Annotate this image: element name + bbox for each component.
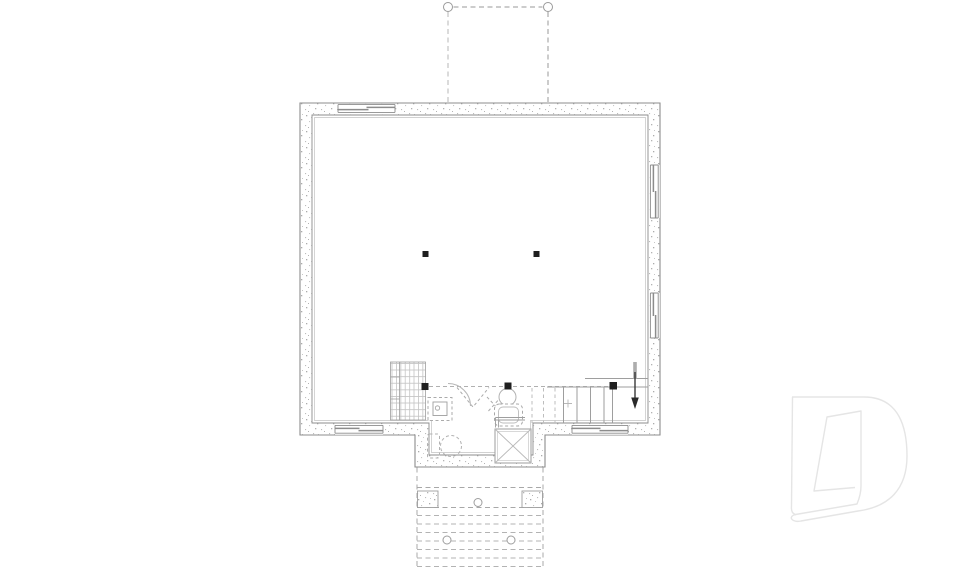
structural-post-center-right — [534, 251, 540, 257]
foundation-wall-furring-line — [315, 118, 646, 453]
floor-drain-cross — [564, 400, 572, 408]
storage-shelving-hatch — [391, 362, 426, 420]
foundation-wall-outer-line — [300, 103, 660, 467]
door-leaf-dashed-v — [457, 388, 489, 408]
rear-step-post-right — [507, 536, 515, 544]
structural-post-center-left — [423, 251, 429, 257]
rear-pier-left — [418, 491, 439, 508]
rear-step-post-left — [443, 536, 451, 544]
toilet-bowl — [499, 389, 516, 406]
rear-post-center — [474, 499, 482, 507]
floor-plan-canvas — [0, 0, 960, 569]
water-heater-circle — [441, 436, 462, 457]
laundry-cabinet-outline — [428, 398, 452, 421]
plan-elements-layer — [300, 3, 907, 569]
stair-treads — [564, 388, 605, 424]
rear-steps-dashed — [417, 516, 543, 567]
stair-treads-dashed — [532, 388, 555, 423]
structural-post-lower-left — [422, 383, 429, 390]
foundation-wall-inner-line — [312, 115, 648, 455]
structural-post-lower-mid — [505, 383, 512, 390]
rear-pier-right — [522, 491, 543, 508]
foundation-wall-band — [300, 103, 660, 467]
stair-arrow-head — [631, 398, 639, 410]
deck-above-post-right — [544, 3, 553, 12]
structural-post-stair — [610, 382, 618, 390]
deck-above-post-left — [444, 3, 453, 12]
brand-watermark-d-logo — [791, 397, 907, 521]
floor-plan-drawing — [0, 0, 960, 569]
